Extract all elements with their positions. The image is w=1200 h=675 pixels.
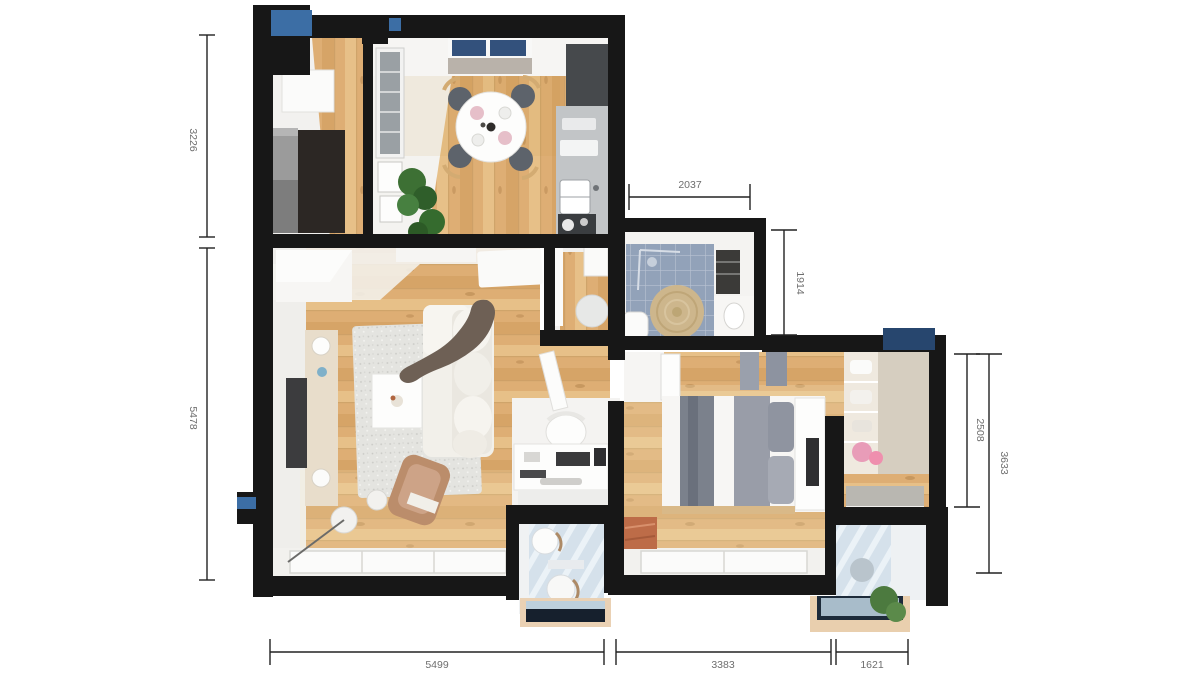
svg-text:1914: 1914 [794,271,806,295]
svg-text:3226: 3226 [187,128,199,152]
svg-text:2037: 2037 [678,179,702,191]
svg-text:5478: 5478 [187,406,199,430]
svg-text:5499: 5499 [425,659,449,671]
svg-text:2508: 2508 [974,418,986,442]
svg-text:3383: 3383 [711,659,735,671]
svg-text:1621: 1621 [860,659,884,671]
svg-text:3633: 3633 [998,451,1010,475]
